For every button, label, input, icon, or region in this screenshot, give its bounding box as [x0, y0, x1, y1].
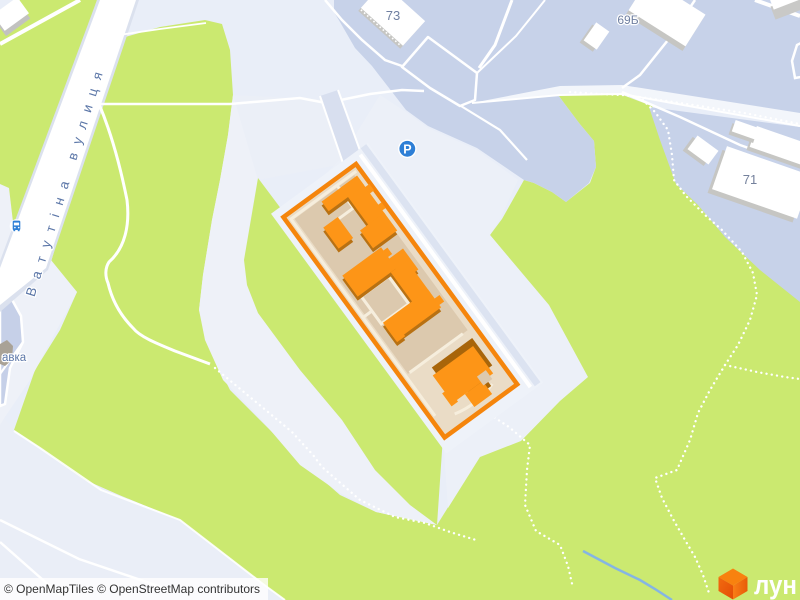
svg-text:© OpenMapTiles © OpenStreetMap: © OpenMapTiles © OpenStreetMap contribut…: [4, 582, 260, 596]
svg-text:P: P: [403, 143, 411, 157]
svg-text:71: 71: [743, 172, 757, 187]
svg-text:лун: лун: [754, 570, 797, 600]
svg-text:69Б: 69Б: [617, 13, 638, 27]
svg-text:авка: авка: [2, 352, 27, 364]
svg-text:73: 73: [386, 8, 400, 23]
